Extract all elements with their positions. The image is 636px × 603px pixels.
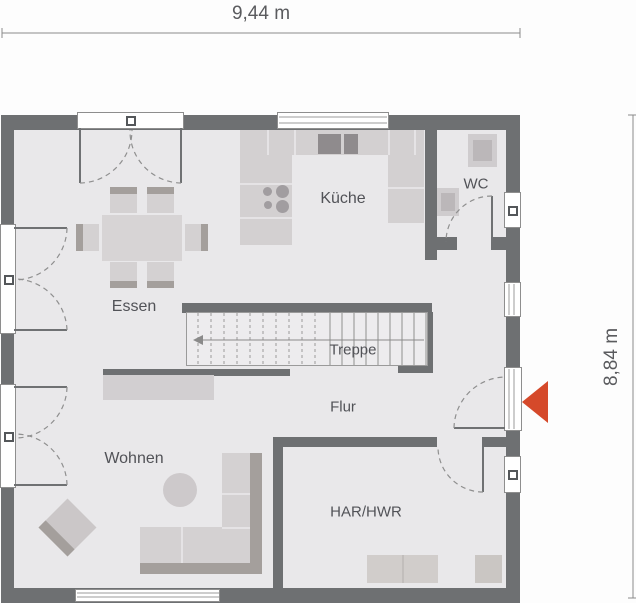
appliance — [367, 555, 438, 583]
door-handle-icon — [126, 116, 136, 126]
room-label-flur: Flur — [330, 399, 356, 416]
sofa-seats-horizontal — [140, 527, 222, 563]
room-label-har-hwr: HAR/HWR — [330, 504, 402, 521]
french-door-left-wohnen — [0, 384, 16, 488]
room-label-kueche: Küche — [320, 190, 365, 208]
sofa-seats-vertical — [222, 453, 250, 563]
room-label-essen: Essen — [112, 298, 156, 316]
wall-wc-bottom-right — [491, 237, 506, 250]
wall-right — [506, 115, 520, 603]
window-flur — [504, 456, 521, 493]
floor-plan: 9,44 m 8,84 m — [0, 0, 636, 603]
window-handle-icon — [508, 470, 518, 480]
washbasin — [468, 134, 497, 167]
wall-har-top — [273, 437, 437, 447]
staircase — [186, 312, 428, 366]
stove-burner — [264, 201, 272, 209]
sink-basin-left — [318, 134, 341, 154]
sofa-backrest-right — [250, 453, 262, 573]
chair — [110, 187, 137, 213]
wall-left — [1, 115, 14, 603]
entrance-door — [504, 367, 522, 431]
chair — [147, 262, 174, 288]
sink-basin-right — [344, 134, 358, 154]
appliance — [475, 555, 502, 583]
chair — [185, 224, 208, 251]
entrance-arrow-icon — [522, 381, 548, 423]
french-door-left-essen — [0, 224, 16, 334]
wall-har-top-right — [482, 437, 506, 447]
window-kitchen — [277, 112, 389, 129]
sofa-backrest-bottom — [140, 563, 262, 574]
chair — [147, 187, 174, 213]
chair — [110, 262, 137, 288]
stove-burner — [263, 187, 272, 196]
chair — [76, 224, 99, 251]
kitchen-counter-right — [388, 155, 424, 223]
wall-wc-bottom-left — [425, 237, 457, 250]
coffee-table — [163, 473, 197, 507]
window-wc — [504, 192, 521, 228]
stove-burner — [276, 200, 289, 213]
sideboard — [103, 375, 214, 400]
window-handle-icon — [508, 206, 518, 216]
dining-table — [102, 215, 182, 261]
width-dimension-label: 9,44 m — [232, 3, 290, 25]
door-handle-icon — [4, 432, 14, 442]
french-door-top-essen — [77, 112, 184, 129]
room-label-treppe: Treppe — [330, 342, 377, 359]
door-handle-icon — [4, 275, 14, 285]
room-label-wc: WC — [464, 176, 489, 193]
wall-har-left — [273, 437, 283, 588]
toilet — [437, 188, 459, 216]
height-dimension-label: 8,84 m — [601, 328, 623, 386]
window-stair-landing — [504, 282, 521, 317]
stove-burner — [276, 185, 289, 198]
window-wohnen-bottom — [75, 589, 220, 602]
room-label-wohnen: Wohnen — [104, 450, 163, 468]
